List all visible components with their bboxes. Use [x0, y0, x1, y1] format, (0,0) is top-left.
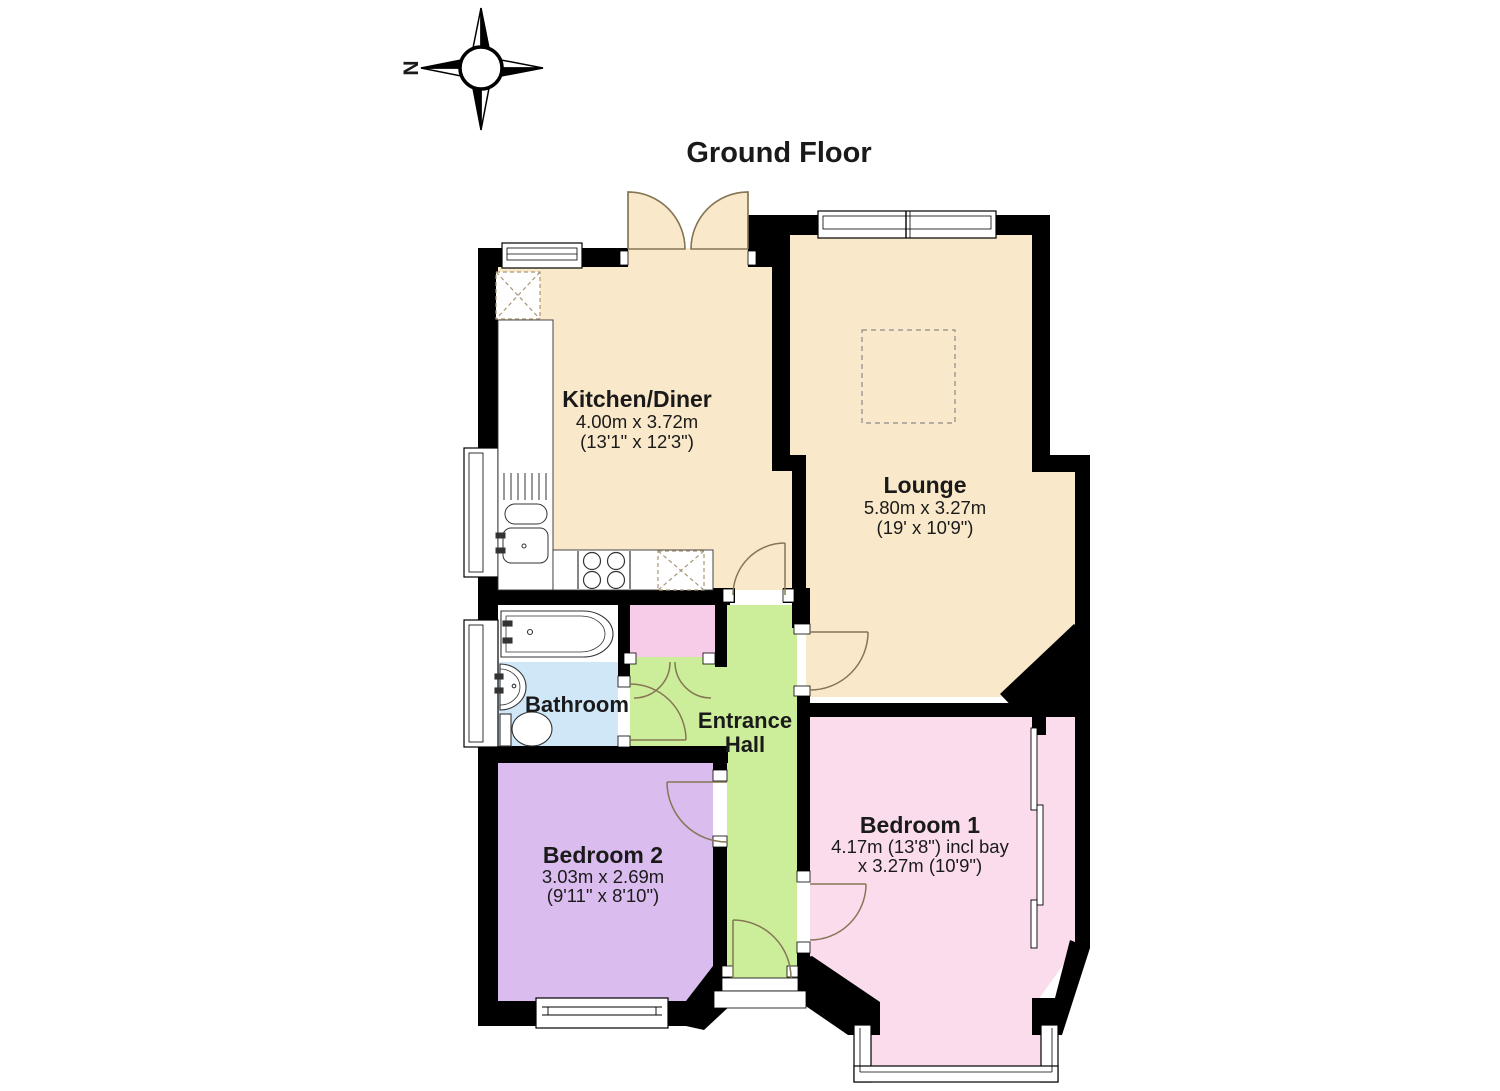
- svg-text:Kitchen/Diner: Kitchen/Diner: [562, 386, 712, 412]
- wall: [478, 590, 730, 605]
- wall: [797, 588, 810, 628]
- wall: [797, 717, 810, 875]
- svg-text:x 3.27m (10'9"): x 3.27m (10'9"): [858, 855, 982, 876]
- label-bedroom2: Bedroom 2 3.03m x 2.69m (9'11" x 8'10"): [542, 842, 664, 906]
- svg-text:5.80m x 3.27m: 5.80m x 3.27m: [864, 497, 986, 518]
- compass-north-label: N: [400, 60, 423, 75]
- svg-text:(9'11" x 8'10"): (9'11" x 8'10"): [547, 885, 659, 906]
- wall: [1075, 717, 1090, 948]
- page-title: Ground Floor: [686, 137, 871, 169]
- label-bathroom: Bathroom: [525, 692, 629, 717]
- floor-plan-page: N Ground Floor Kitchen/Diner 4.00m x 3.7…: [0, 0, 1500, 1091]
- svg-text:Lounge: Lounge: [883, 472, 966, 498]
- svg-text:Bedroom 1: Bedroom 1: [860, 812, 980, 838]
- wall: [772, 235, 790, 463]
- compass: N: [400, 8, 543, 130]
- svg-text:4.17m (13'8") incl bay: 4.17m (13'8") incl bay: [831, 836, 1009, 857]
- bedroom1-bay-floor: [862, 1003, 1052, 1075]
- floor-plan-svg: N Ground Floor Kitchen/Diner 4.00m x 3.7…: [0, 0, 1500, 1091]
- appliance-space-2: [658, 551, 704, 590]
- french-door-left-lobe: [628, 192, 685, 249]
- compass-circle: [460, 47, 502, 89]
- room-cupboard-floor: [630, 605, 715, 657]
- front-door-threshold: [714, 978, 806, 1008]
- wall: [1032, 215, 1050, 462]
- wall: [478, 746, 728, 763]
- svg-text:Bedroom 2: Bedroom 2: [543, 842, 663, 868]
- svg-text:(13'1" x 12'3"): (13'1" x 12'3"): [580, 431, 694, 452]
- window-kitchen-left: [464, 448, 498, 577]
- window-bathroom-left: [464, 620, 498, 747]
- svg-text:(19' x 10'9"): (19' x 10'9"): [877, 517, 974, 538]
- wall: [618, 590, 630, 685]
- bath-tub: [501, 611, 613, 657]
- svg-text:3.03m x 2.69m: 3.03m x 2.69m: [542, 866, 664, 887]
- toilet: [500, 712, 552, 746]
- window-bedroom2-bottom: [536, 998, 668, 1028]
- french-door-right-lobe: [691, 192, 748, 249]
- window-kitchen-top: [502, 243, 582, 268]
- svg-text:Hall: Hall: [725, 732, 765, 757]
- label-kitchen: Kitchen/Diner 4.00m x 3.72m (13'1" x 12'…: [562, 386, 712, 452]
- kitchen-counter-left: [498, 320, 553, 590]
- svg-text:4.00m x 3.72m: 4.00m x 3.72m: [576, 411, 698, 432]
- wall: [797, 703, 1090, 717]
- window-lounge-top: [818, 211, 996, 238]
- appliance-space-1: [496, 272, 540, 319]
- svg-text:Entrance: Entrance: [698, 708, 792, 733]
